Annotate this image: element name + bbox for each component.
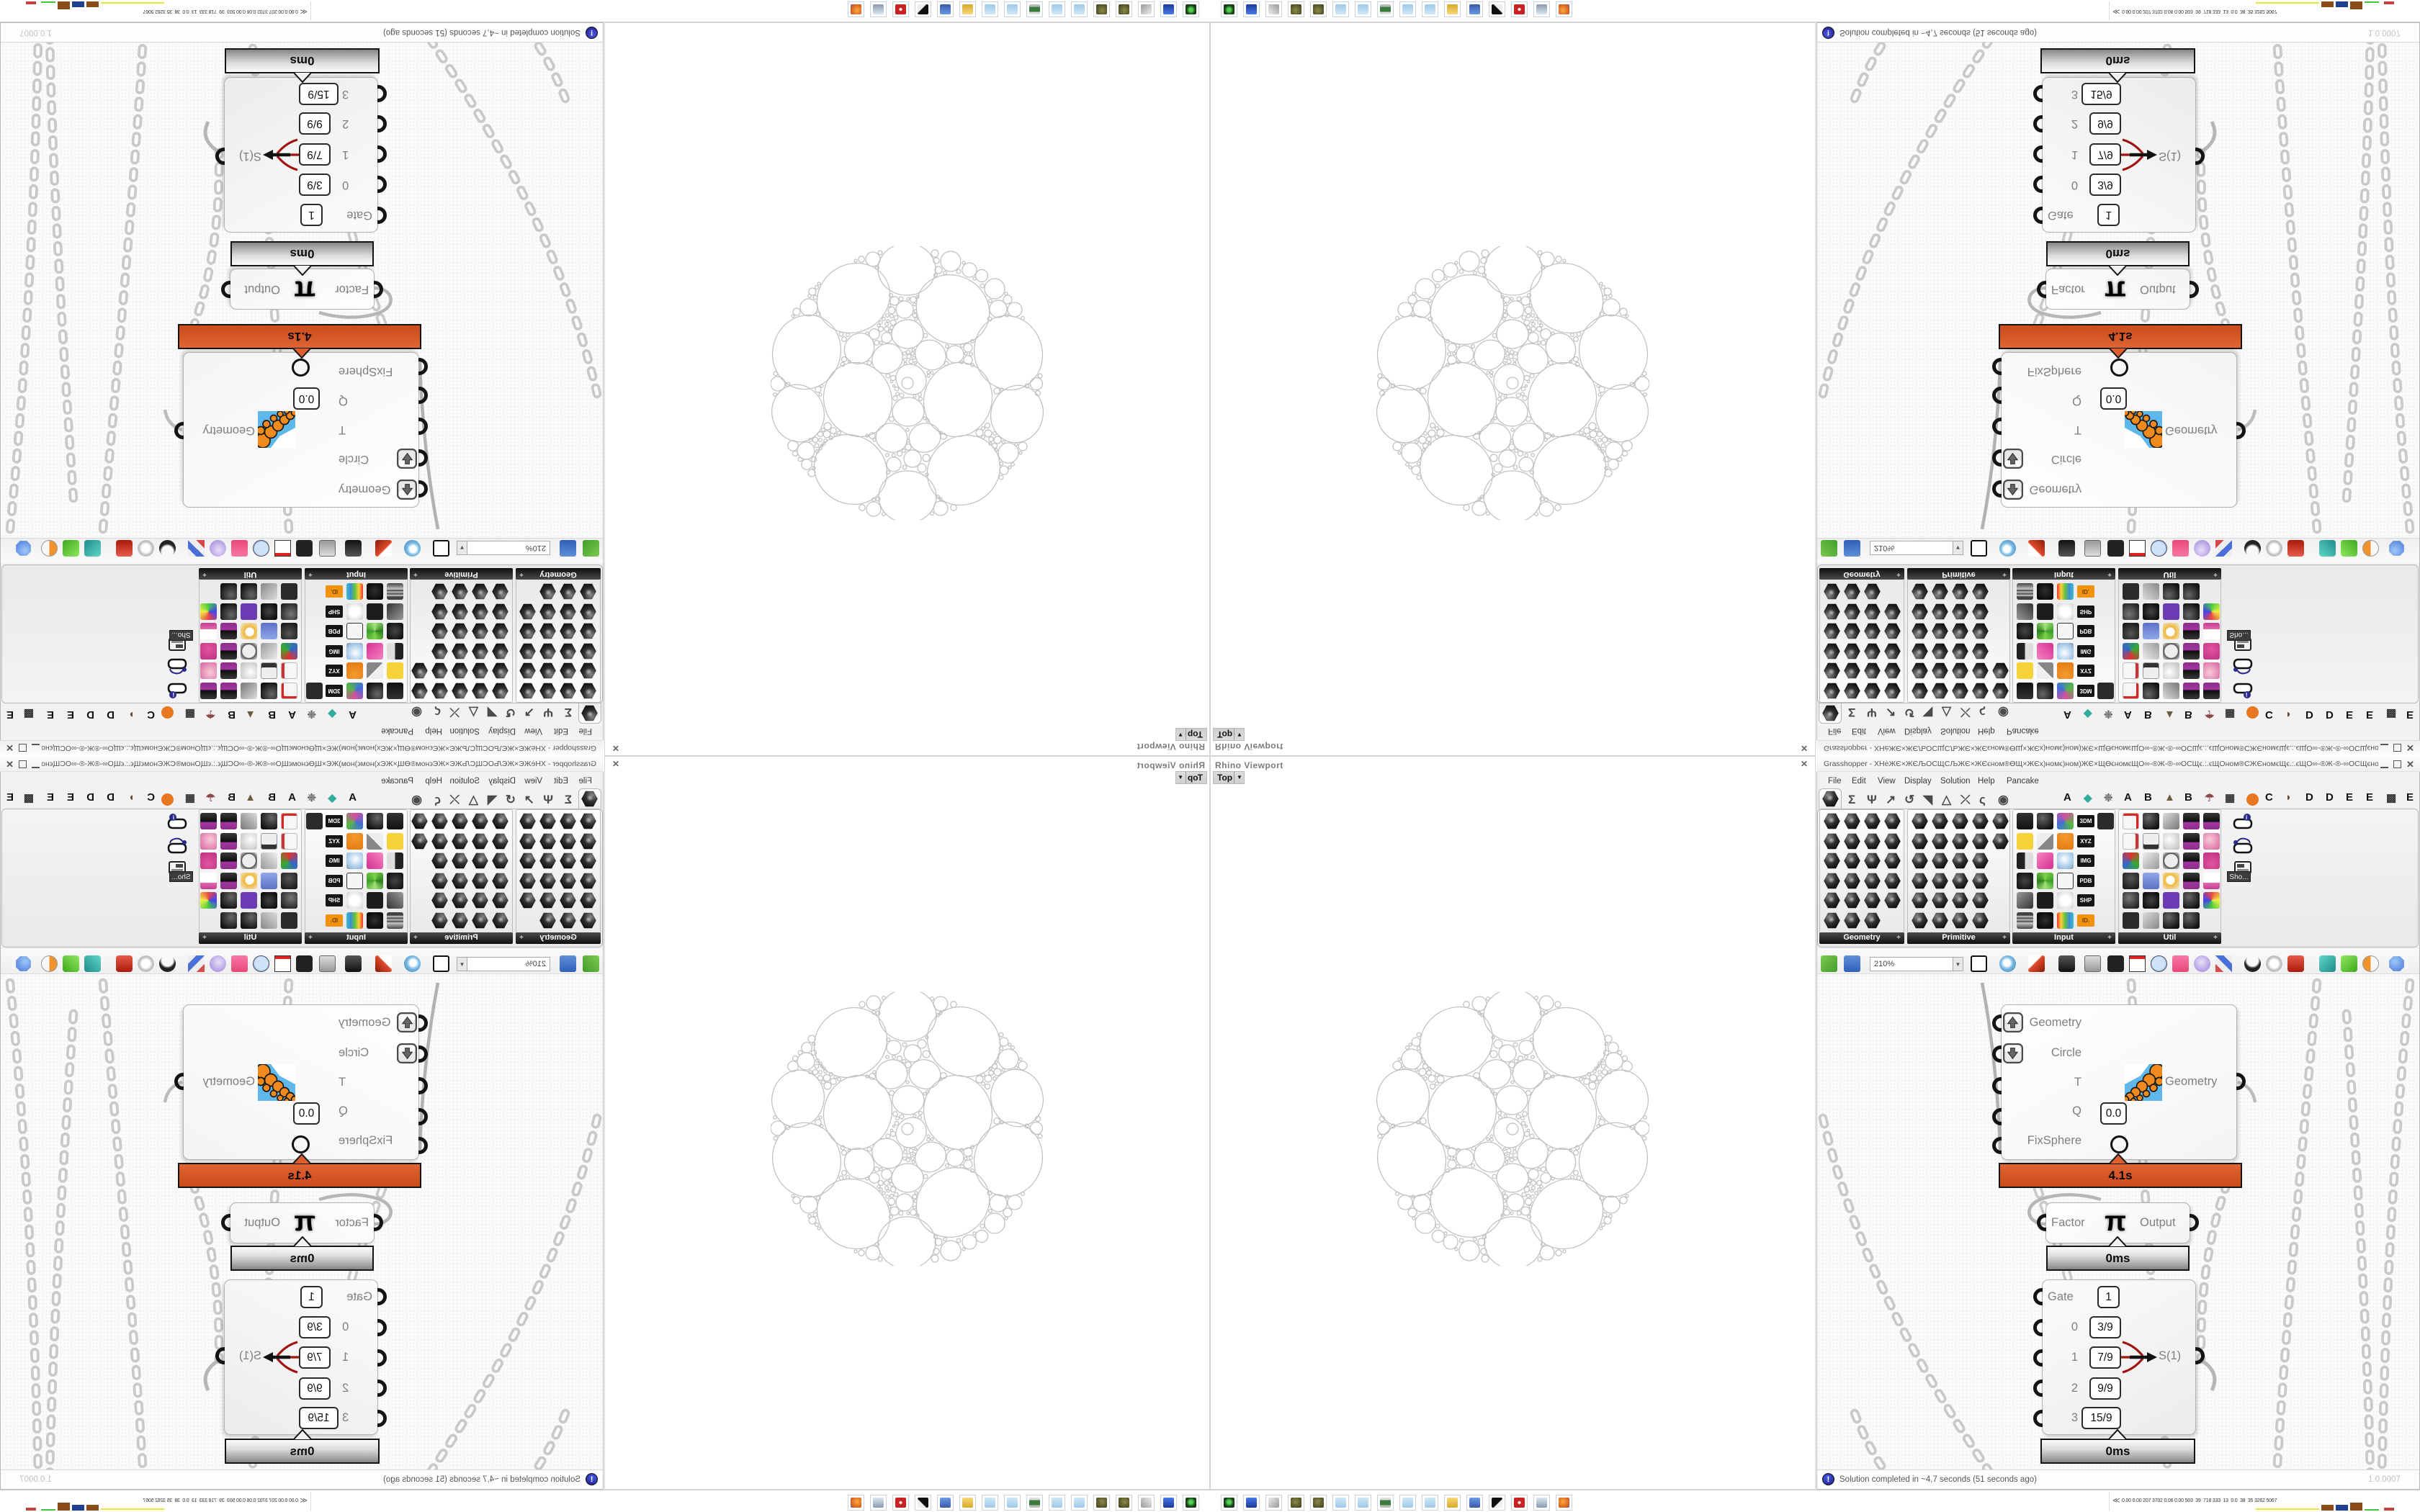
svg-text:i: i [173,691,174,698]
svg-text:i: i [2246,814,2247,821]
svg-text:i: i [2246,691,2247,698]
svg-text:i: i [173,814,174,821]
